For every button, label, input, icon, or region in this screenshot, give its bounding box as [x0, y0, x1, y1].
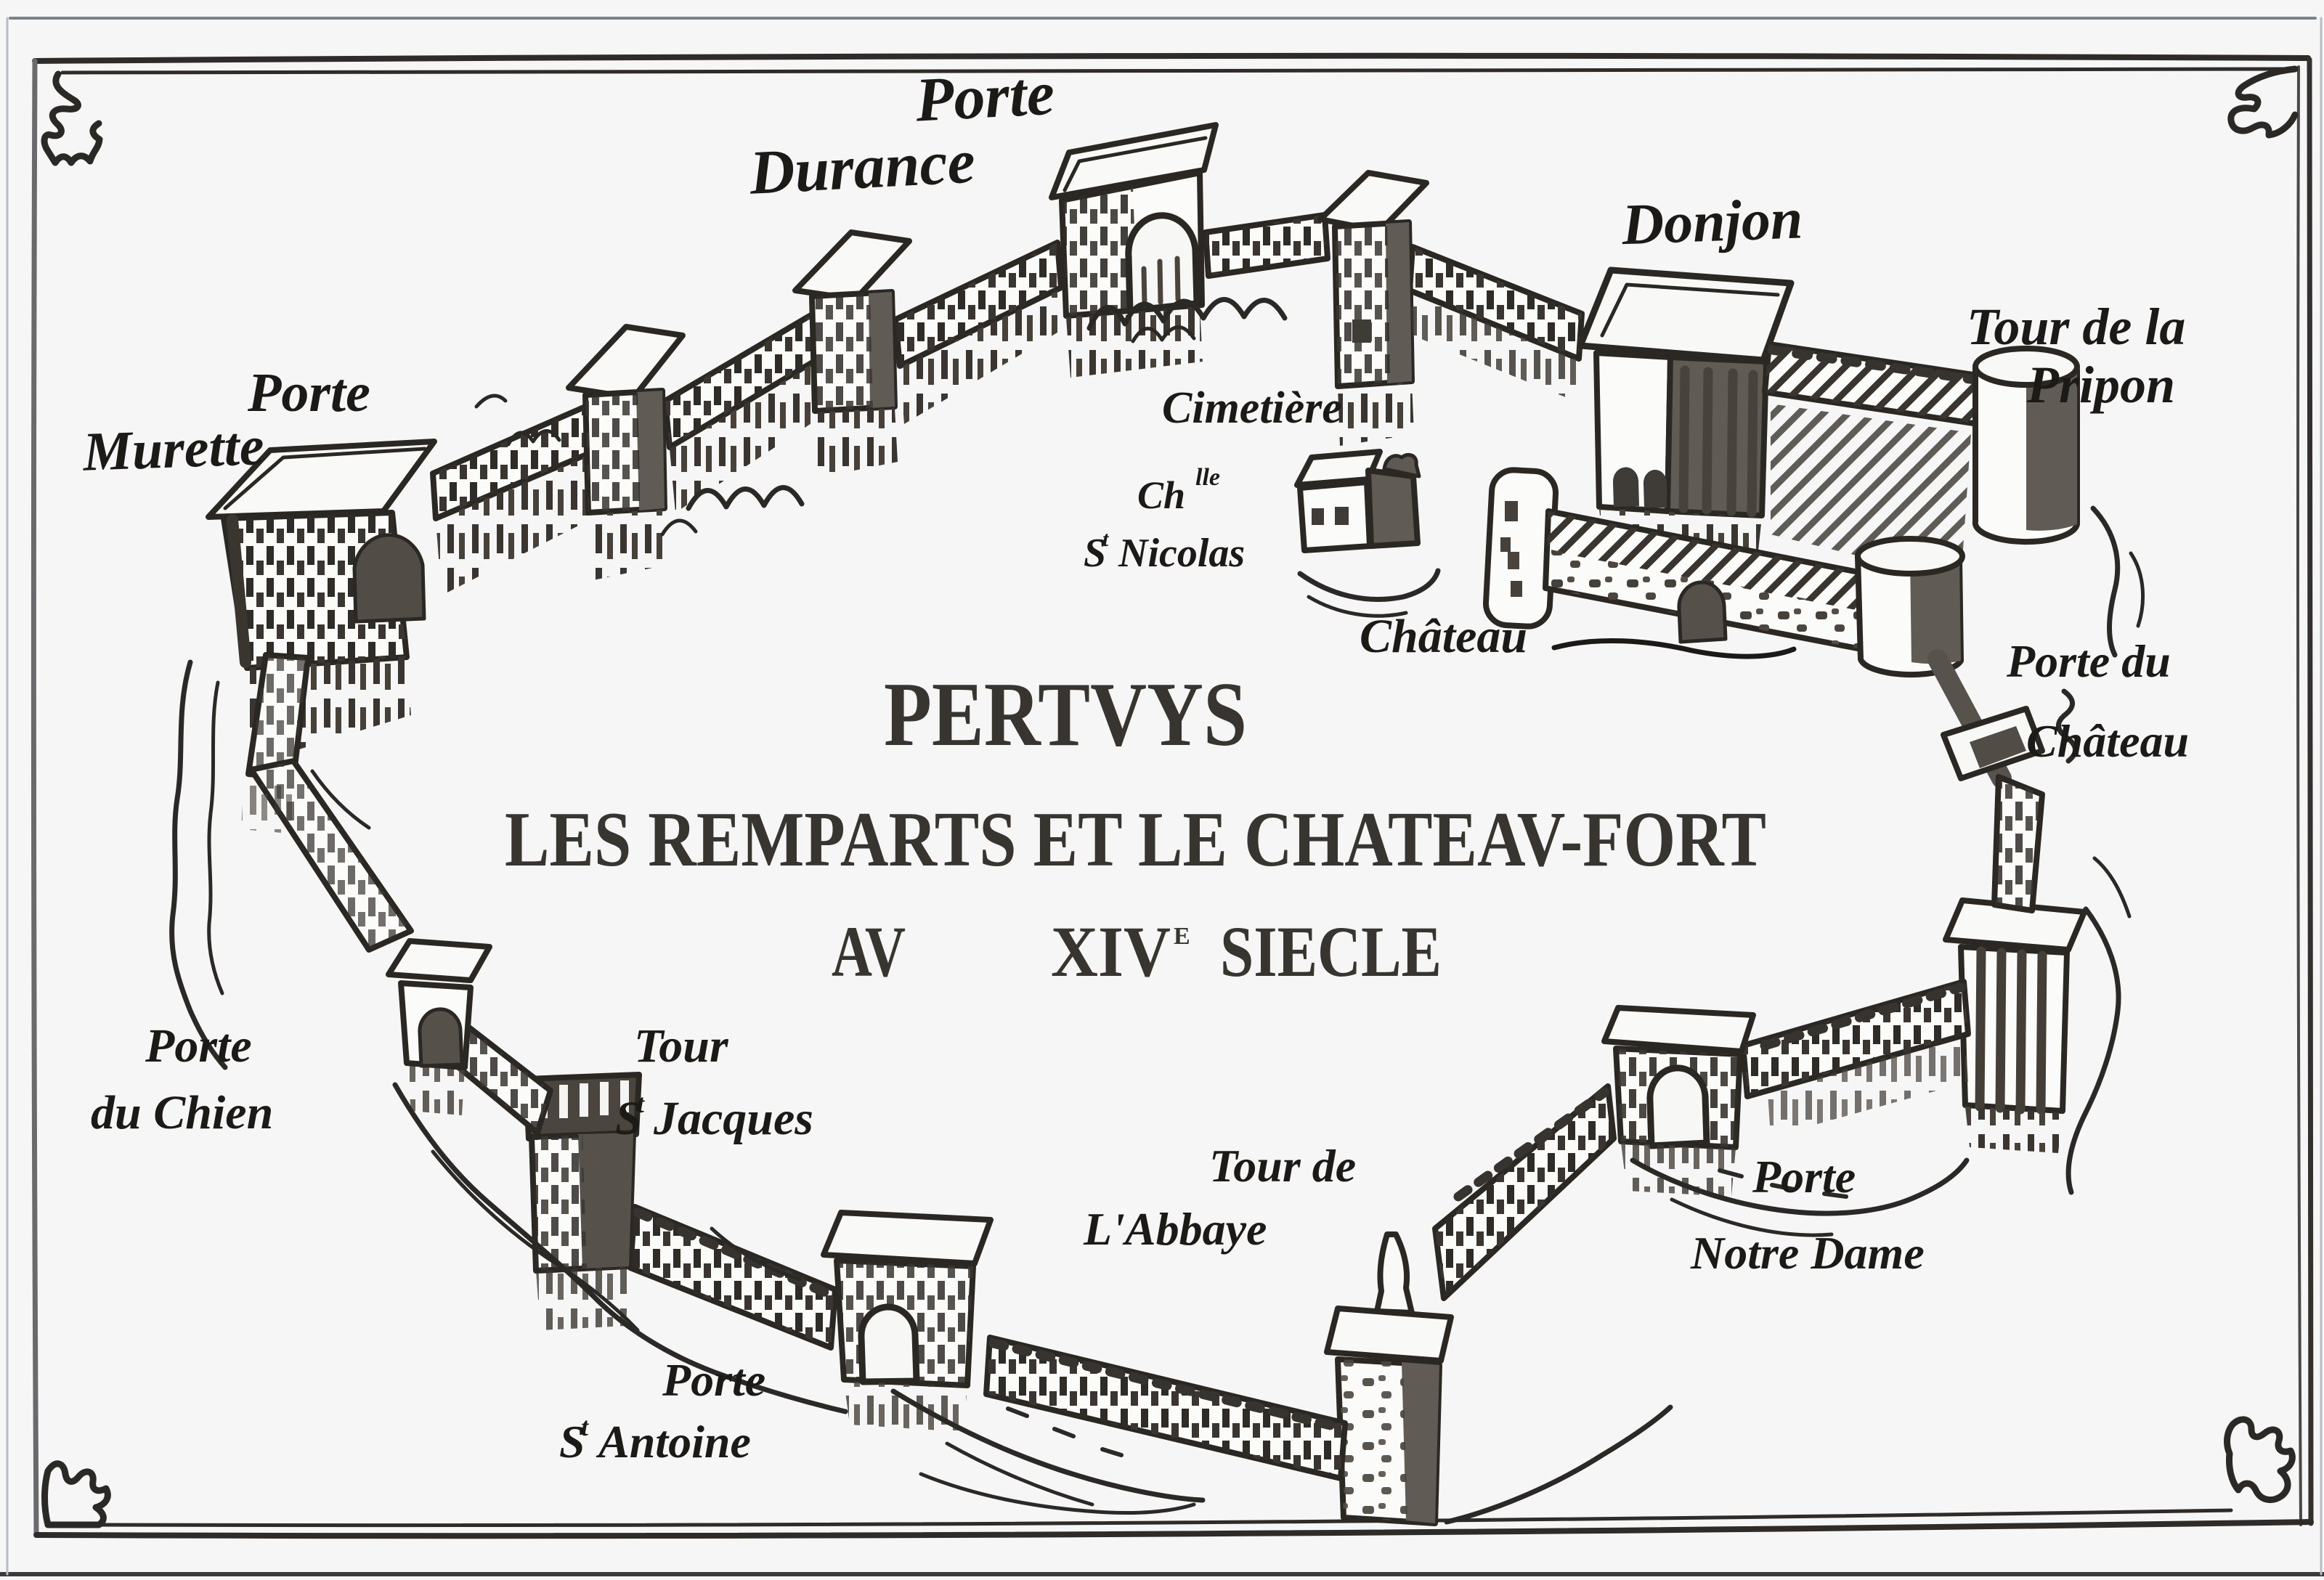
- svg-text:AV: AV: [832, 911, 906, 992]
- svg-text:Tour de la: Tour de la: [1967, 298, 2185, 356]
- svg-text:Donjon: Donjon: [1620, 187, 1804, 257]
- svg-text:Pripon: Pripon: [2026, 356, 2175, 414]
- svg-text:Tour: Tour: [634, 1019, 729, 1072]
- svg-text:t: t: [637, 1089, 645, 1118]
- svg-text:Château: Château: [2026, 715, 2189, 767]
- svg-text:Porte: Porte: [145, 1019, 252, 1072]
- svg-text:Murette: Murette: [81, 415, 265, 483]
- svg-text:E: E: [1174, 923, 1190, 950]
- svg-text:Nicolas: Nicolas: [1118, 531, 1245, 576]
- svg-text:Tour de: Tour de: [1209, 1140, 1356, 1192]
- svg-text:Porte: Porte: [247, 362, 370, 423]
- svg-text:Porte du: Porte du: [2006, 635, 2171, 687]
- svg-text:Porte: Porte: [662, 1354, 765, 1406]
- svg-text:XIV: XIV: [1051, 911, 1171, 992]
- svg-text:LES REMPARTS ET LE CHATEAV-FOR: LES REMPARTS ET LE CHATEAV-FORT: [505, 797, 1766, 883]
- svg-text:Jacques: Jacques: [653, 1092, 813, 1145]
- svg-text:Château: Château: [1360, 610, 1527, 663]
- svg-text:t: t: [581, 1412, 589, 1441]
- svg-text:Porte: Porte: [1752, 1151, 1856, 1202]
- svg-text:Porte: Porte: [913, 58, 1056, 135]
- svg-text:t: t: [1102, 527, 1110, 551]
- svg-text:Durance: Durance: [747, 126, 977, 208]
- svg-text:L'Abbaye: L'Abbaye: [1083, 1203, 1267, 1255]
- svg-text:Ch: Ch: [1137, 473, 1185, 517]
- svg-text:Cimetière: Cimetière: [1162, 383, 1342, 433]
- svg-text:Antoine: Antoine: [596, 1416, 751, 1467]
- svg-text:lle: lle: [1195, 464, 1220, 491]
- svg-text:du Chien: du Chien: [91, 1086, 273, 1139]
- svg-text:SIECLE: SIECLE: [1220, 911, 1442, 992]
- svg-text:Notre Dame: Notre Dame: [1690, 1227, 1925, 1279]
- svg-text:PERTVYS: PERTVYS: [884, 664, 1247, 765]
